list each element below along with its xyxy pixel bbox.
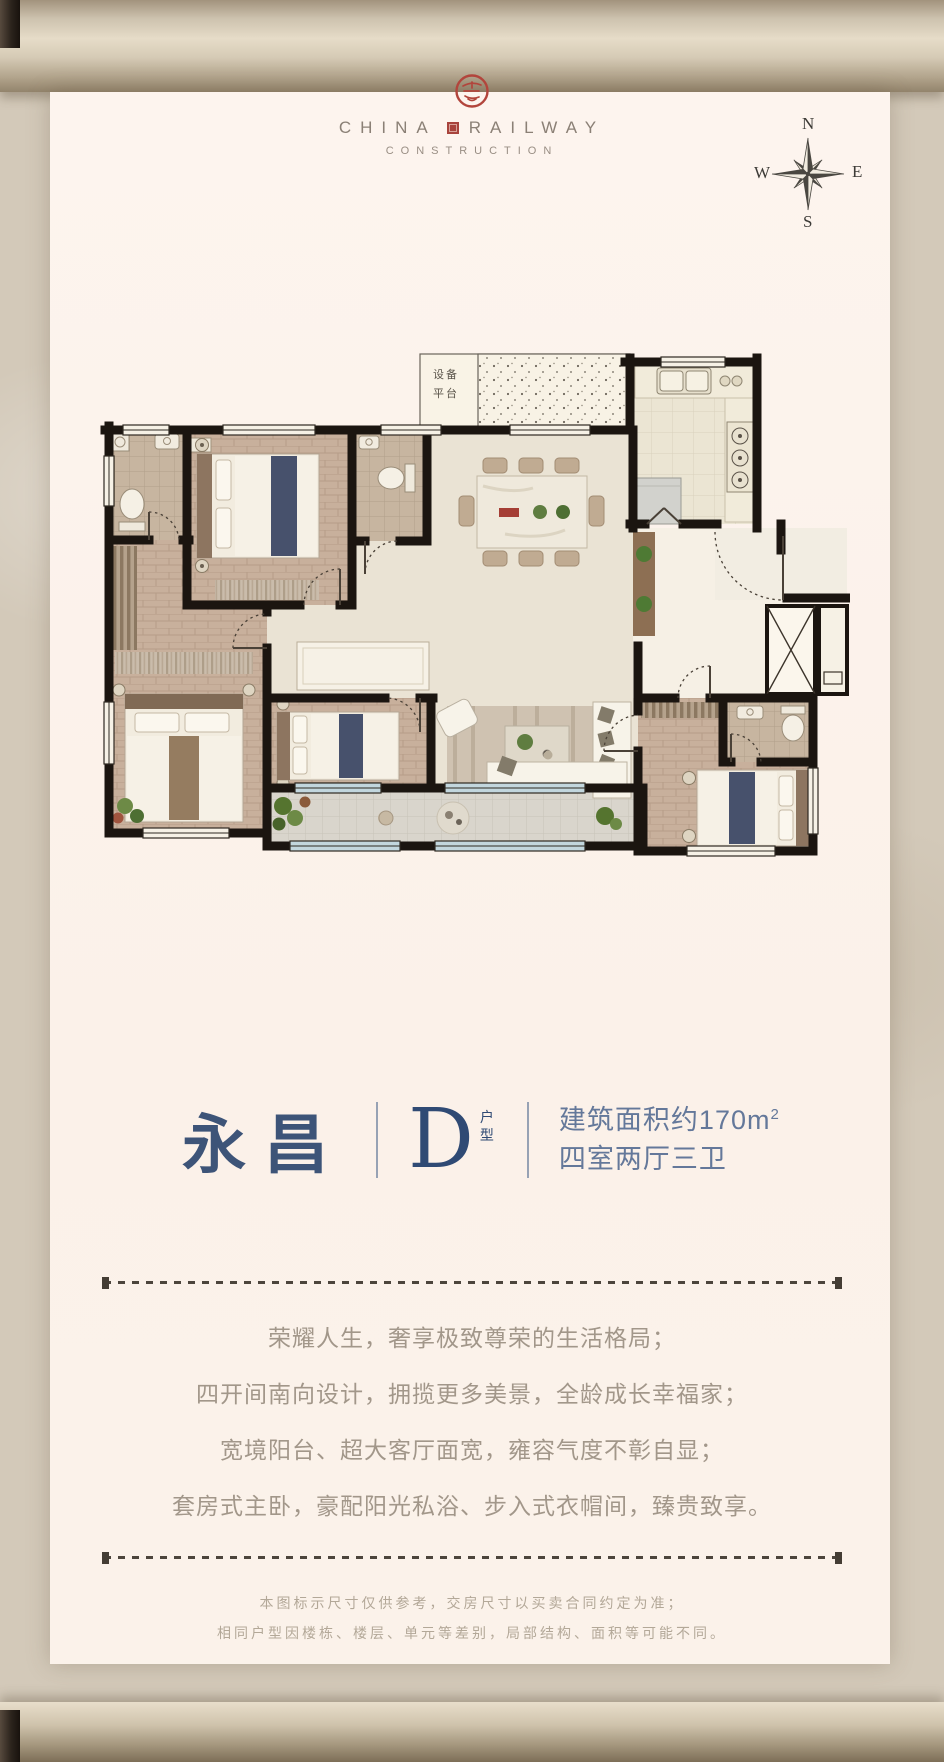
marketing-line: 荣耀人生，奢享极致尊荣的生活格局； [0, 1310, 944, 1366]
unit-type-suffix: 户型 [480, 1109, 497, 1144]
scroll-rod-bottom [0, 1702, 944, 1762]
brand-name-left: CHINA [339, 118, 437, 138]
scroll-rod-cap-bottom [0, 1710, 20, 1762]
equipment-platform-label: 设备平台 [433, 366, 459, 403]
marketing-line: 四开间南向设计，拥揽更多美景，全龄成长幸福家； [0, 1366, 944, 1422]
brand-seal-icon [453, 72, 491, 110]
unit-type-letter: D [408, 1101, 474, 1179]
marketing-line: 宽境阳台、超大客厅面宽，雍容气度不彰自显； [0, 1422, 944, 1478]
divider-endcap [835, 1277, 842, 1289]
divider-endcap [835, 1552, 842, 1564]
plant-shelf [633, 532, 655, 636]
brand-red-square-icon [447, 122, 459, 134]
brand-name-right: RAILWAY [469, 118, 605, 138]
title-divider-1 [376, 1102, 378, 1178]
elevator-shaft [767, 606, 847, 694]
hall-sideboard [297, 642, 429, 690]
unit-name: 永昌 [164, 1094, 346, 1186]
compass-north-label: N [802, 114, 814, 134]
disclaimer: 本图标示尺寸仅供参考，交房尺寸以买卖合同约定为准； 相同户型因楼栋、楼层、单元等… [0, 1588, 944, 1648]
compass-south-label: S [803, 212, 812, 232]
scroll-rod-cap-top [0, 0, 20, 48]
compass-rose: N S W E [752, 116, 864, 232]
unit-title-row: 永昌 D 户型 建筑面积约170m2 四室两厅三卫 [0, 1094, 944, 1186]
unit-info: 建筑面积约170m2 四室两厅三卫 [559, 1101, 780, 1179]
divider-endcap [102, 1552, 109, 1564]
disclaimer-line: 相同户型因楼栋、楼层、单元等差别，局部结构、面积等可能不同。 [0, 1618, 944, 1648]
dashed-divider-top [104, 1281, 840, 1284]
unit-rooms: 四室两厅三卫 [559, 1144, 727, 1174]
unit-area: 建筑面积约170m2 [559, 1105, 780, 1135]
compass-east-label: E [852, 162, 862, 182]
title-divider-2 [527, 1102, 529, 1178]
divider-endcap [102, 1277, 109, 1289]
bedroom2-furniture [277, 698, 399, 789]
marketing-copy: 荣耀人生，奢享极致尊荣的生活格局； 四开间南向设计，拥揽更多美景，全龄成长幸福家… [0, 1310, 944, 1534]
floor-plan-graphic [85, 306, 850, 858]
unit-type-block: D 户型 [408, 1101, 497, 1179]
floor-plan [85, 306, 850, 858]
marketing-line: 套房式主卧，豪配阳光私浴、步入式衣帽间，臻贵致享。 [0, 1478, 944, 1534]
scroll-poster: CHINA RAILWAY CONSTRUCTION N [0, 0, 944, 1762]
compass-west-label: W [754, 163, 770, 183]
dashed-divider-bottom [104, 1556, 840, 1559]
disclaimer-line: 本图标示尺寸仅供参考，交房尺寸以买卖合同约定为准； [0, 1588, 944, 1618]
